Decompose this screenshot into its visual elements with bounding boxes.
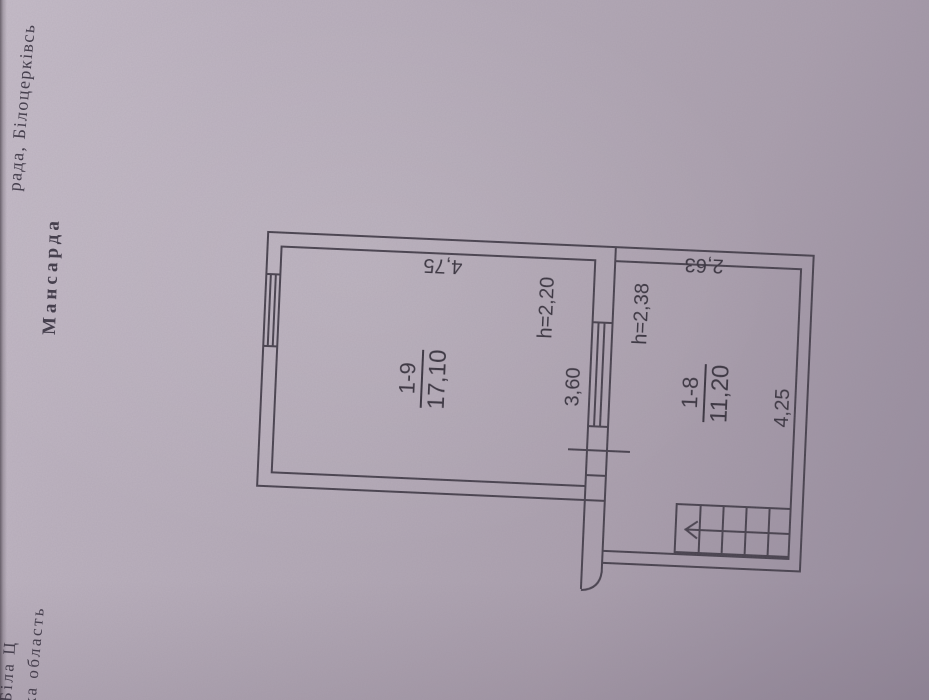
room-a-number: 1-9 [394,349,423,408]
room-a-width-dimension: 4,75 [402,252,483,278]
room-b-height-label: h=2,38 [629,268,656,359]
photographed-document-page: рада, Білоцерківсь Мансарда Біла Ц ка об… [0,0,929,700]
room-b-depth-dimension: 4,25 [770,368,796,449]
document-header-text: рада, Білоцерківсь [4,1,41,192]
room-a-number-area-label: 1-9 17,10 [391,328,455,431]
staircase [675,504,791,557]
room-a-depth-dimension: 3,60 [561,346,587,427]
room-b-number-area-label: 1-8 11,20 [673,342,737,445]
photo-bottom-shade [0,580,929,700]
room-b-number: 1-8 [677,363,706,422]
floor-plan: 4,75 h=2,20 3,60 1-9 17,10 2,63 h=2,38 4… [232,223,848,629]
room-a-height-label: h=2,20 [534,262,561,353]
room-b-area: 11,20 [704,364,735,423]
floor-title-mansarda: Мансарда [39,211,65,336]
room-b-width-dimension: 2,63 [664,251,745,277]
room-a-area: 17,10 [421,349,452,410]
